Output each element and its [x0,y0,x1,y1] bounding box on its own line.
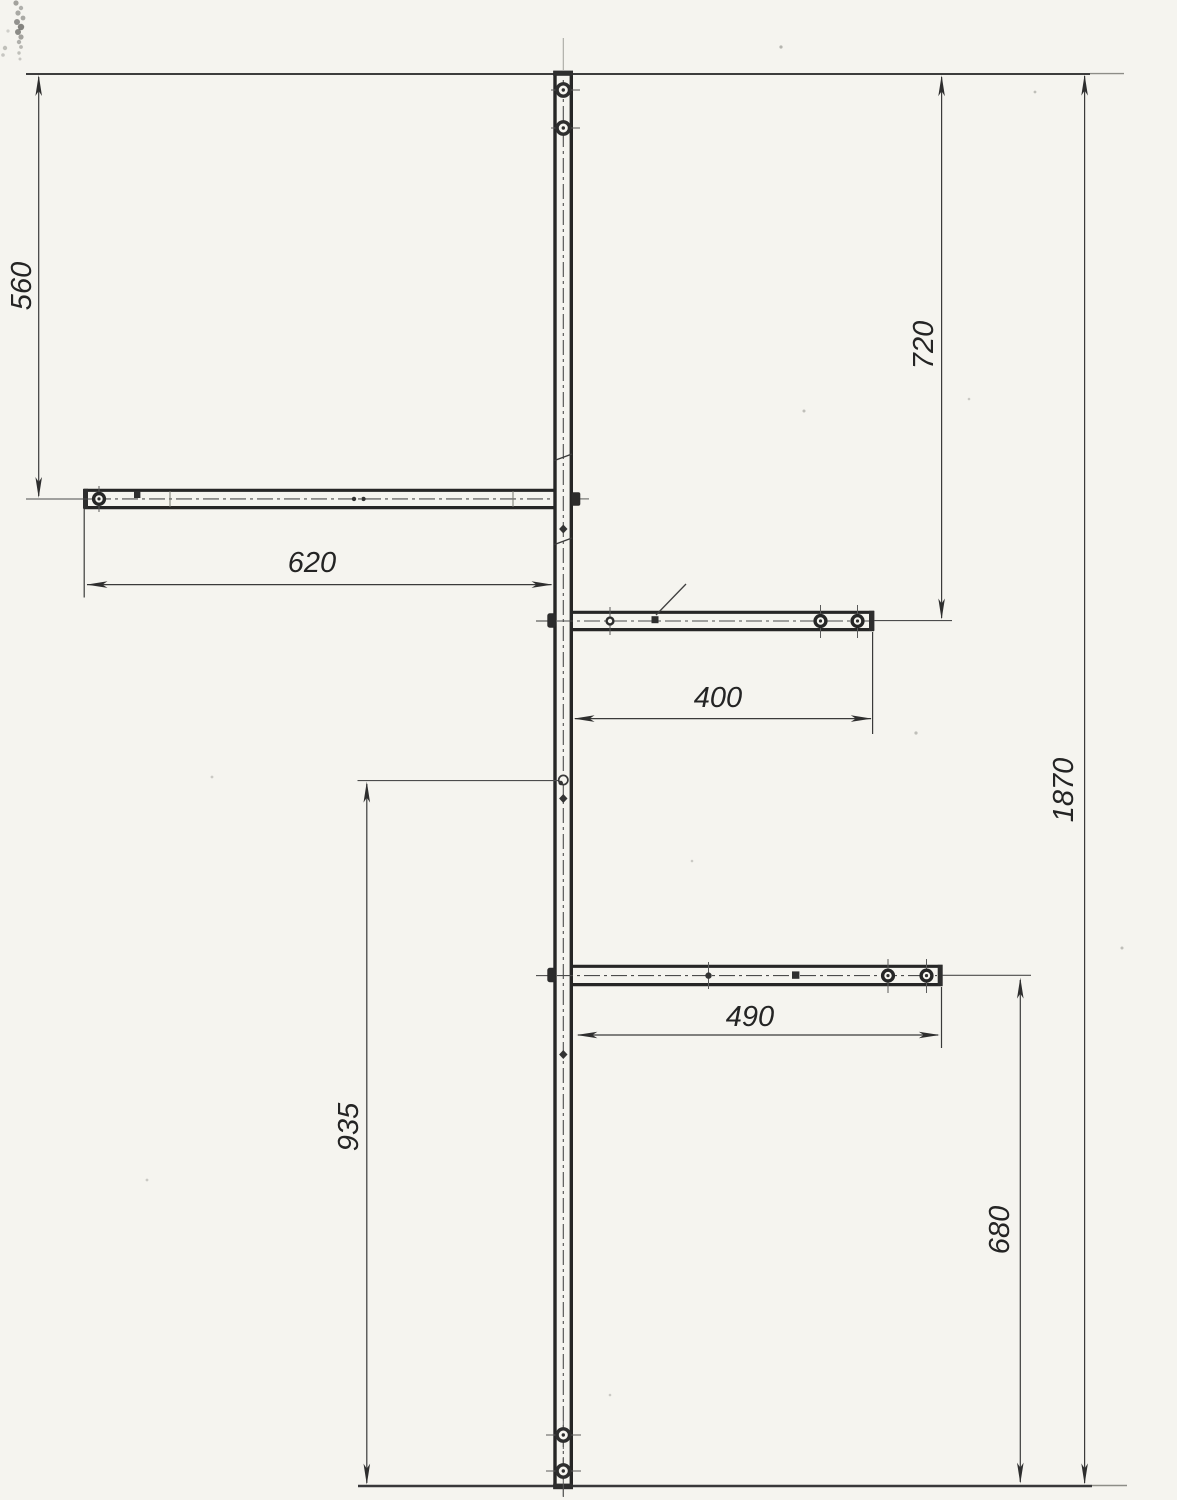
svg-text:720: 720 [908,321,940,369]
svg-text:935: 935 [333,1102,365,1151]
svg-text:680: 680 [984,1206,1016,1254]
svg-text:560: 560 [6,262,38,310]
svg-text:1870: 1870 [1048,758,1080,823]
svg-text:490: 490 [726,1001,774,1033]
svg-text:400: 400 [694,682,742,714]
svg-text:620: 620 [288,547,336,579]
